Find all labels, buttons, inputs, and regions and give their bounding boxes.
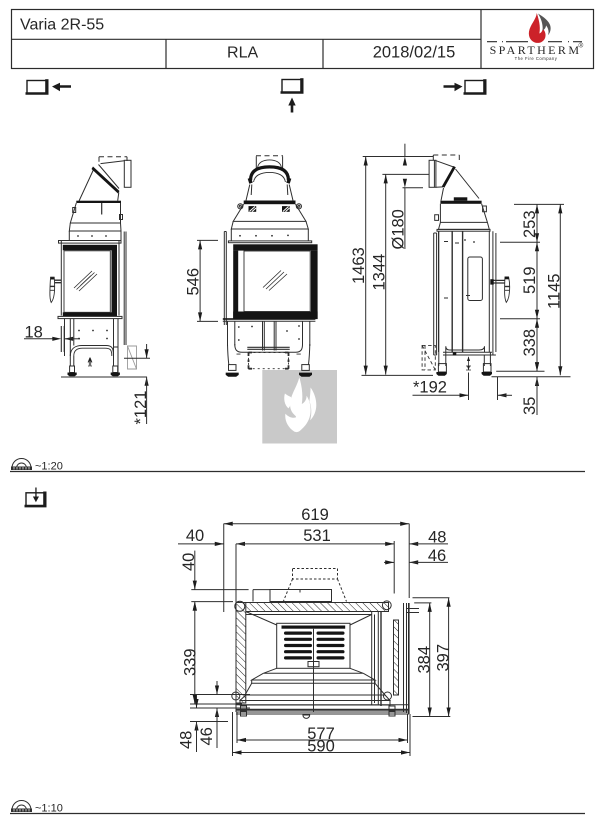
svg-text:RLA: RLA [227,45,258,62]
svg-text:~1:20: ~1:20 [35,461,63,473]
svg-text:46: 46 [198,727,216,745]
svg-text:SPARTHERM: SPARTHERM [490,43,582,57]
svg-text:1145: 1145 [546,274,564,309]
svg-text:253: 253 [521,210,539,238]
svg-text:619: 619 [301,506,329,524]
svg-text:*192: *192 [413,379,447,397]
svg-text:338: 338 [521,329,539,357]
svg-text:1463: 1463 [350,247,368,284]
svg-text:48: 48 [428,529,446,547]
svg-text:590: 590 [307,738,335,756]
svg-text:1344: 1344 [370,254,388,291]
svg-text:546: 546 [185,268,203,296]
svg-text:48: 48 [178,731,196,749]
svg-text:531: 531 [303,527,331,545]
svg-text:40: 40 [186,527,204,545]
svg-text:397: 397 [435,644,453,672]
svg-text:*121: *121 [132,391,150,425]
svg-text:384: 384 [416,646,434,674]
svg-text:Ø180: Ø180 [390,209,408,249]
svg-text:40: 40 [180,553,198,571]
svg-text:519: 519 [521,266,539,294]
svg-text:Varia 2R-55: Varia 2R-55 [20,17,104,34]
svg-text:2018/02/15: 2018/02/15 [373,44,456,62]
svg-text:35: 35 [521,397,539,415]
svg-text:®: ® [579,42,584,50]
svg-text:The Fire Company: The Fire Company [515,56,558,61]
svg-text:46: 46 [428,547,446,565]
svg-text:339: 339 [182,648,200,676]
svg-text:~1:10: ~1:10 [35,803,63,815]
